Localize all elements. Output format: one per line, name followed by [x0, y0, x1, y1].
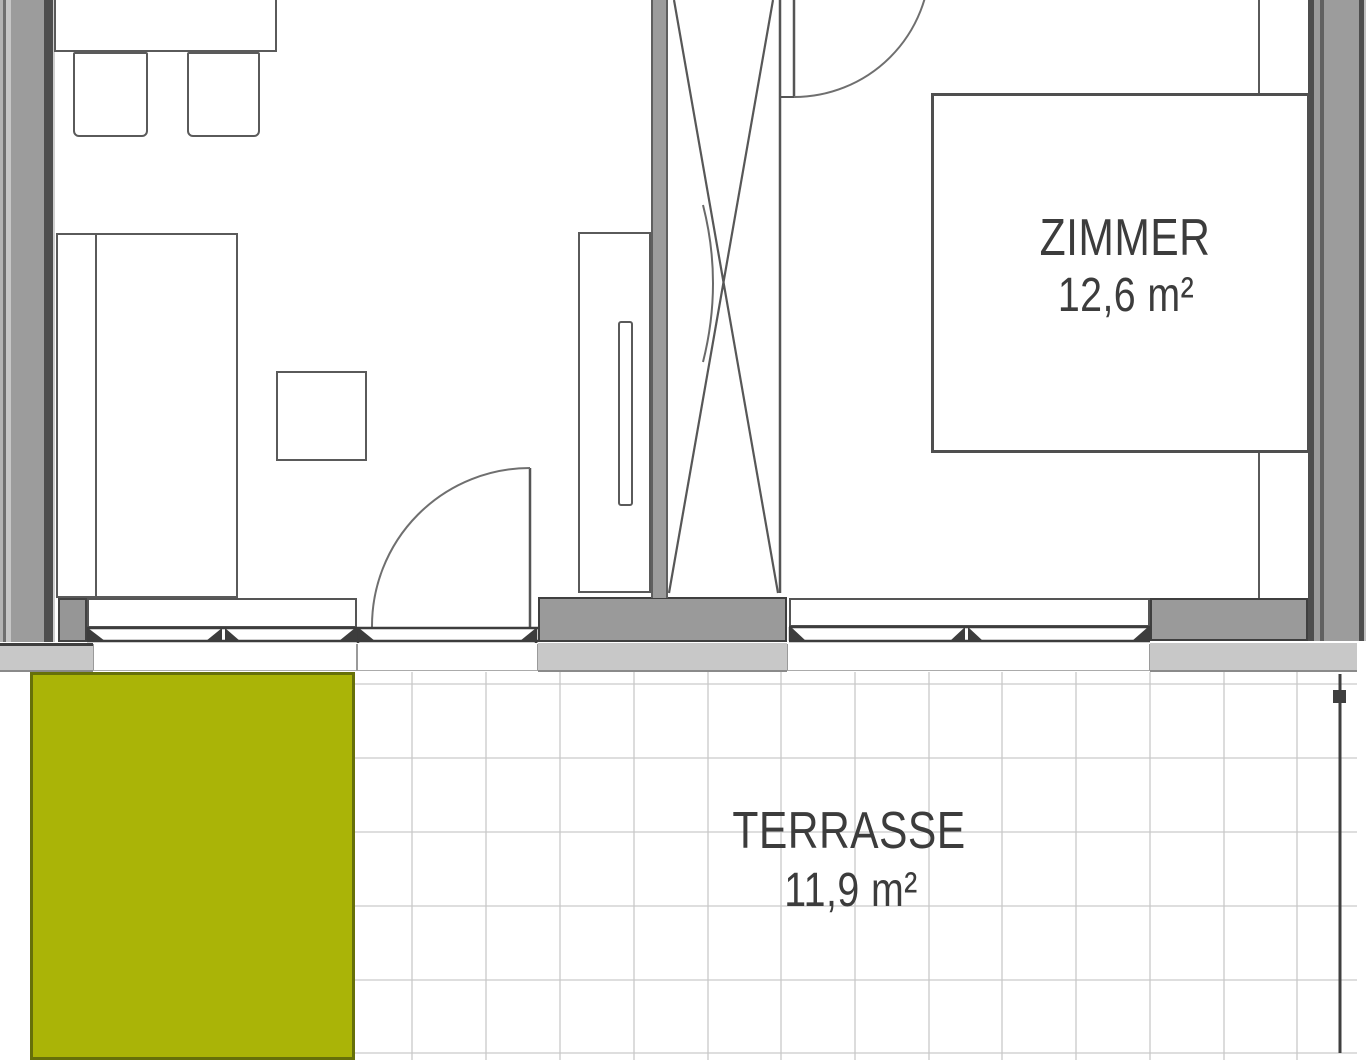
- shaft-diagonal-1: [674, 0, 778, 593]
- zimmer-area-text: 12,6 m²: [1058, 269, 1194, 322]
- zimmer-door-swing-arc: [794, 0, 930, 97]
- zimmer-area: 12,6 m²: [1003, 272, 1249, 320]
- zimmer-label: ZIMMER: [1002, 212, 1248, 264]
- shaft-diagonal-2: [669, 0, 773, 593]
- terrace-door-swing-arc: [372, 468, 530, 627]
- plan-linework: [0, 0, 1370, 1060]
- floorplan-canvas: ZIMMER 12,6 m² TERRASSE 11,9 m²: [0, 0, 1370, 1060]
- terrasse-name-text: TERRASSE: [732, 802, 965, 860]
- shaft-arc: [703, 205, 713, 362]
- terrasse-label: TERRASSE: [726, 805, 972, 857]
- terrace-door-glazing: [357, 628, 538, 641]
- terrace-railing-post: [1333, 690, 1346, 703]
- terrasse-area-text: 11,9 m²: [784, 864, 917, 917]
- zimmer-name-text: ZIMMER: [1040, 209, 1211, 267]
- terrasse-area: 11,9 m²: [728, 867, 974, 915]
